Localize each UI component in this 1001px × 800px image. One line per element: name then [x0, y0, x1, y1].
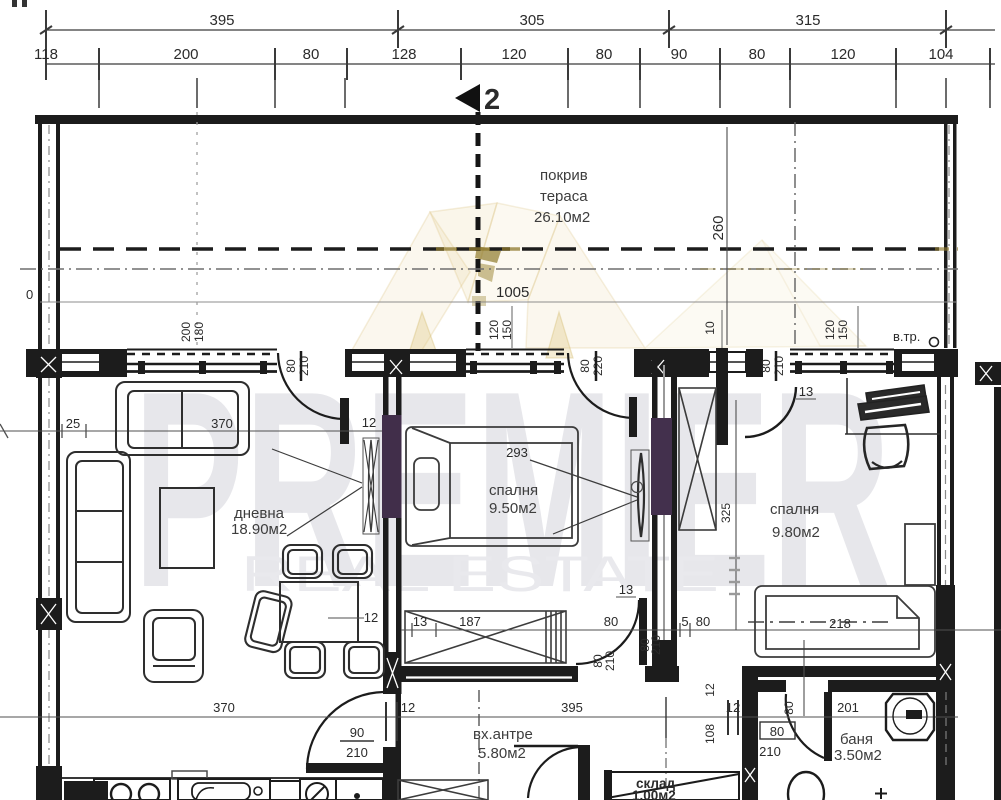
svg-text:80: 80 [696, 614, 710, 629]
svg-text:5.80м2: 5.80м2 [478, 745, 526, 762]
svg-text:25: 25 [66, 416, 80, 431]
svg-text:1.00м2: 1.00м2 [632, 788, 676, 800]
svg-text:80: 80 [284, 359, 298, 373]
svg-text:200: 200 [179, 322, 193, 342]
svg-text:395: 395 [209, 12, 234, 29]
svg-text:108: 108 [703, 724, 717, 744]
svg-text:12: 12 [362, 415, 376, 430]
svg-text:12: 12 [703, 683, 717, 697]
svg-text:180: 180 [192, 322, 206, 342]
svg-text:395: 395 [561, 700, 583, 715]
svg-text:90: 90 [671, 46, 688, 63]
svg-text:80: 80 [770, 724, 784, 739]
svg-text:120: 120 [501, 46, 526, 63]
svg-text:218: 218 [829, 616, 851, 631]
svg-text:12: 12 [401, 700, 415, 715]
svg-text:2: 2 [484, 84, 500, 116]
svg-text:12: 12 [364, 610, 378, 625]
svg-text:80: 80 [749, 46, 766, 63]
svg-text:1005: 1005 [496, 284, 529, 301]
svg-text:9.50м2: 9.50м2 [489, 500, 537, 517]
svg-text:80: 80 [596, 46, 613, 63]
svg-text:210: 210 [772, 356, 786, 376]
svg-text:90: 90 [350, 725, 364, 740]
svg-text:104: 104 [928, 46, 953, 63]
svg-text:вх.антре: вх.антре [473, 726, 533, 743]
svg-text:80: 80 [578, 359, 592, 373]
svg-text:293: 293 [506, 445, 528, 460]
svg-text:120: 120 [823, 320, 837, 340]
svg-text:120: 120 [830, 46, 855, 63]
svg-text:120: 120 [487, 320, 501, 340]
svg-text:201: 201 [837, 700, 859, 715]
svg-text:315: 315 [795, 12, 820, 29]
svg-text:10: 10 [703, 321, 717, 335]
svg-text:80: 80 [759, 359, 773, 373]
svg-text:0: 0 [26, 287, 33, 302]
svg-text:13: 13 [413, 614, 427, 629]
svg-text:210: 210 [759, 744, 781, 759]
svg-text:210: 210 [346, 745, 368, 760]
svg-text:150: 150 [500, 320, 514, 340]
svg-text:210: 210 [603, 651, 617, 671]
svg-text:9.80м2: 9.80м2 [772, 524, 820, 541]
svg-text:5: 5 [681, 614, 688, 629]
svg-text:спалня: спалня [489, 482, 538, 499]
svg-text:тераса: тераса [540, 188, 588, 205]
svg-text:80: 80 [782, 701, 796, 715]
svg-text:баня: баня [840, 731, 873, 748]
svg-text:370: 370 [211, 416, 233, 431]
svg-text:305: 305 [519, 12, 544, 29]
svg-text:210: 210 [649, 635, 663, 655]
svg-text:118: 118 [34, 46, 58, 63]
svg-text:спалня: спалня [770, 501, 819, 518]
svg-text:128: 128 [391, 46, 416, 63]
svg-text:325: 325 [719, 503, 733, 523]
svg-text:200: 200 [173, 46, 198, 63]
svg-text:370: 370 [213, 700, 235, 715]
svg-text:покрив: покрив [540, 167, 588, 184]
svg-text:210: 210 [297, 356, 311, 376]
svg-text:260: 260 [710, 215, 727, 240]
svg-text:18.90м2: 18.90м2 [231, 521, 287, 538]
svg-text:дневна: дневна [234, 505, 285, 522]
svg-text:80: 80 [604, 614, 618, 629]
svg-text:13: 13 [799, 384, 813, 399]
svg-text:80: 80 [303, 46, 320, 63]
svg-text:в.тр.: в.тр. [893, 329, 920, 344]
svg-text:13: 13 [619, 582, 633, 597]
svg-text:150: 150 [836, 320, 850, 340]
svg-text:220: 220 [591, 356, 605, 376]
svg-text:26.10м2: 26.10м2 [534, 209, 590, 226]
svg-text:187: 187 [459, 614, 481, 629]
svg-text:3.50м2: 3.50м2 [834, 747, 882, 764]
